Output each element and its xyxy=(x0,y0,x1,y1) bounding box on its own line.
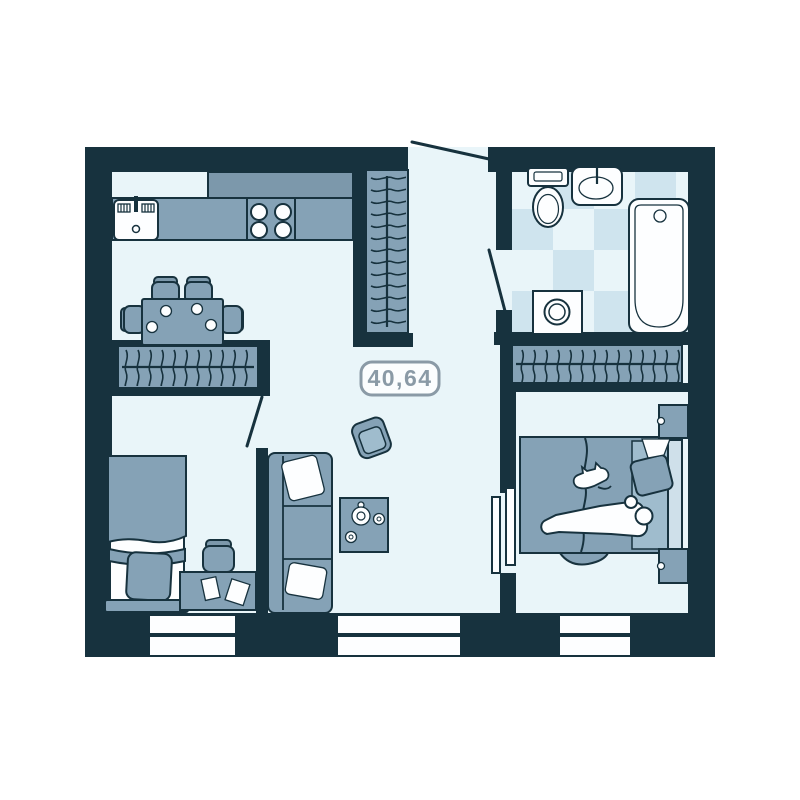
washbasin-icon xyxy=(572,167,622,205)
coffee-table-icon xyxy=(340,498,388,552)
wall-left xyxy=(85,147,112,657)
single-bed-icon xyxy=(105,456,188,612)
sofa-icon xyxy=(268,453,332,613)
kitchen-upper-cabinet xyxy=(208,172,353,199)
wardrobe-hall xyxy=(366,170,408,333)
window-icon xyxy=(338,616,460,655)
wall-bathroom-upper xyxy=(496,147,512,250)
desk-chair-icon xyxy=(203,540,234,572)
plate-icon xyxy=(192,304,203,315)
wall-bedroom-right-lower xyxy=(500,573,516,613)
plate-icon xyxy=(147,322,158,333)
pillow-icon xyxy=(126,552,172,601)
wall-right xyxy=(688,147,715,657)
wardrobe-right-frame xyxy=(500,383,688,392)
nightstand-icon xyxy=(658,549,689,583)
floor-plan: 40,64 xyxy=(0,0,800,800)
window-icon xyxy=(150,616,235,655)
nightstand-icon xyxy=(658,405,689,438)
plate-icon xyxy=(206,320,217,331)
closet-left xyxy=(118,346,258,388)
bed-headboard xyxy=(668,440,682,550)
double-bed-icon xyxy=(520,437,682,565)
cup-icon xyxy=(374,514,385,525)
area-label-text: 40,64 xyxy=(367,365,432,391)
wardrobe-right xyxy=(512,345,682,383)
window-icon xyxy=(560,616,630,655)
bathtub-icon xyxy=(629,199,689,333)
bed-footboard xyxy=(105,600,188,612)
pillow-icon xyxy=(629,454,673,497)
wall-bedroom-left xyxy=(256,448,268,613)
wardrobe-hall-frame xyxy=(353,333,413,347)
plate-icon xyxy=(161,306,172,317)
wall-bathroom-bottom xyxy=(494,332,715,345)
dining-chair-icon xyxy=(221,306,243,333)
area-badge: 40,64 xyxy=(361,362,439,395)
washing-machine-icon xyxy=(533,291,582,334)
kitchen-sink-icon xyxy=(114,196,158,240)
teapot-icon xyxy=(352,507,370,525)
pillow-icon xyxy=(285,562,328,600)
cup-icon xyxy=(346,532,357,543)
